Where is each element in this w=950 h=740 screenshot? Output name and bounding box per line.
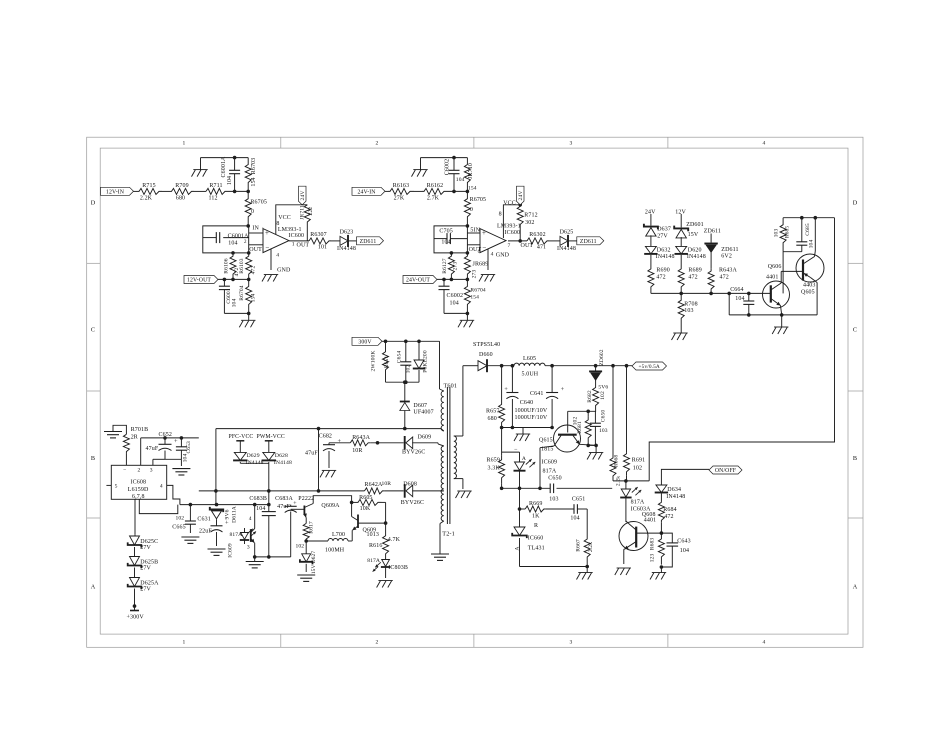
svg-text:R6705: R6705 (470, 197, 487, 203)
svg-text:472: 472 (250, 266, 256, 275)
svg-text:IN: IN (252, 225, 259, 231)
svg-text:C640: C640 (520, 400, 533, 406)
svg-text:PWM-VCC: PWM-VCC (257, 434, 285, 440)
svg-text:C683B: C683B (249, 496, 267, 502)
svg-text:103: 103 (684, 308, 693, 314)
svg-text:302: 302 (525, 220, 534, 226)
svg-text:ON/OFF: ON/OFF (715, 468, 736, 474)
svg-text:JR711: JR711 (299, 205, 305, 220)
svg-text:104: 104 (441, 240, 450, 246)
svg-text:12V-OUT: 12V-OUT (187, 278, 211, 284)
svg-text:L6159D: L6159D (128, 487, 149, 493)
svg-text:R711: R711 (209, 183, 222, 189)
svg-text:D628: D628 (275, 453, 288, 459)
svg-text:C705: C705 (439, 229, 452, 235)
svg-text:6,7,8: 6,7,8 (132, 494, 145, 500)
svg-text:R: R (534, 523, 538, 529)
svg-text:R657: R657 (486, 408, 499, 414)
svg-text:R708: R708 (684, 301, 697, 307)
svg-text:IC609: IC609 (542, 460, 558, 466)
svg-text:2: 2 (376, 141, 379, 147)
svg-text:2W100K: 2W100K (371, 350, 377, 371)
svg-text:104: 104 (680, 548, 689, 554)
svg-text:4: 4 (249, 516, 252, 522)
svg-text:112: 112 (208, 196, 217, 202)
svg-text:D629: D629 (247, 453, 260, 459)
svg-text:2R: 2R (131, 435, 138, 441)
svg-text:+5v/0.5A: +5v/0.5A (639, 364, 660, 370)
svg-text:A: A (91, 584, 96, 591)
svg-text:R643A: R643A (719, 268, 737, 274)
svg-text:D623: D623 (340, 229, 354, 235)
svg-text:C685: C685 (805, 223, 811, 236)
svg-text:27V: 27V (140, 566, 151, 572)
svg-text:R616: R616 (369, 543, 382, 549)
svg-text:C650: C650 (548, 475, 561, 481)
svg-text:5IN: 5IN (470, 227, 480, 233)
svg-text:8: 8 (499, 211, 502, 217)
svg-text:472: 472 (664, 514, 673, 520)
svg-text:27V: 27V (140, 587, 151, 593)
svg-text:+: + (293, 501, 297, 507)
svg-text:10R: 10R (382, 481, 392, 487)
svg-text:104: 104 (227, 176, 233, 185)
svg-text:R715: R715 (142, 183, 155, 189)
svg-text:IC660: IC660 (528, 535, 544, 541)
svg-text:R659: R659 (487, 458, 500, 464)
svg-text:R684: R684 (663, 507, 676, 513)
svg-text:102: 102 (406, 365, 412, 374)
svg-text:3.3K: 3.3K (488, 466, 501, 472)
svg-text:D608: D608 (403, 481, 417, 487)
svg-text:IN4148: IN4148 (656, 254, 675, 260)
svg-text:4: 4 (491, 252, 494, 258)
svg-text:C: C (853, 327, 857, 334)
svg-text:154: 154 (468, 186, 477, 192)
svg-text:15V: 15V (688, 232, 699, 238)
svg-text:24V-OUT: 24V-OUT (406, 278, 430, 284)
svg-text:R617: R617 (308, 521, 314, 534)
svg-text:C683A: C683A (275, 496, 293, 502)
svg-text:R605: R605 (359, 495, 372, 501)
svg-text:5V6: 5V6 (598, 385, 608, 391)
svg-text:102: 102 (633, 466, 642, 472)
svg-text:OUT: OUT (297, 242, 310, 248)
svg-text:5: 5 (115, 483, 118, 489)
svg-text:R709: R709 (175, 183, 188, 189)
svg-text:R683: R683 (649, 538, 655, 551)
svg-text:+: + (561, 386, 565, 393)
svg-text:+: + (225, 519, 229, 526)
svg-text:C682: C682 (319, 433, 332, 439)
svg-text:104: 104 (231, 299, 237, 308)
svg-text:101: 101 (318, 245, 327, 251)
svg-text:D632: D632 (657, 247, 671, 253)
svg-text:10R: 10R (352, 448, 362, 454)
svg-text:R701B: R701B (131, 427, 149, 433)
svg-text:A: A (522, 456, 526, 462)
svg-text:471: 471 (537, 245, 546, 251)
svg-text:R6302: R6302 (529, 232, 546, 238)
svg-text:+: + (504, 386, 508, 393)
svg-text:472: 472 (656, 274, 665, 280)
svg-text:L605: L605 (523, 356, 536, 362)
svg-text:ZD602: ZD602 (599, 349, 605, 365)
svg-text:103: 103 (549, 497, 558, 503)
svg-text:27V: 27V (140, 545, 151, 551)
svg-text:104: 104 (183, 454, 189, 463)
svg-text:4: 4 (763, 640, 766, 646)
svg-text:0: 0 (470, 207, 473, 213)
svg-text:R642A: R642A (365, 482, 383, 488)
svg-text:27V: 27V (657, 233, 668, 239)
svg-text:4.7K: 4.7K (388, 537, 401, 543)
svg-text:D611A: D611A (231, 506, 237, 523)
svg-text:680: 680 (176, 196, 185, 202)
svg-text:IN4148: IN4148 (337, 246, 356, 252)
svg-text:C641: C641 (530, 391, 543, 397)
svg-text:IC600: IC600 (289, 233, 305, 239)
svg-text:4: 4 (276, 253, 279, 259)
svg-text:5.0UH: 5.0UH (522, 371, 539, 377)
svg-text:3: 3 (150, 468, 153, 474)
svg-text:VCC: VCC (278, 215, 291, 221)
svg-text:A: A (514, 546, 520, 550)
svg-text:3: 3 (570, 640, 573, 646)
svg-text:C: C (91, 327, 95, 334)
svg-text:2: 2 (244, 240, 247, 245)
svg-text:7: 7 (508, 243, 511, 249)
svg-text:6V2: 6V2 (721, 253, 732, 259)
svg-text:3: 3 (247, 544, 250, 550)
svg-text:R6704: R6704 (239, 285, 245, 301)
svg-text:+300V: +300V (127, 614, 145, 620)
svg-text:GND: GND (277, 267, 291, 273)
svg-text:104: 104 (570, 516, 579, 522)
svg-text:817A: 817A (543, 469, 557, 475)
svg-text:R643A: R643A (352, 435, 370, 441)
svg-text:IN4148: IN4148 (246, 460, 264, 466)
svg-text:IC609: IC609 (228, 543, 234, 558)
svg-text:1: 1 (292, 242, 295, 248)
svg-text:+: + (482, 229, 486, 237)
svg-text:D620: D620 (688, 247, 702, 253)
svg-text:PFC-VCC: PFC-VCC (229, 434, 254, 440)
svg-text:IN4148: IN4148 (666, 494, 685, 500)
svg-text:1K: 1K (532, 514, 540, 520)
svg-text:2.2k: 2.2k (588, 542, 594, 552)
svg-text:R667: R667 (576, 539, 582, 552)
svg-text:1815: 1815 (541, 446, 553, 452)
svg-text:472: 472 (720, 274, 729, 280)
svg-text:D607: D607 (413, 403, 427, 409)
svg-text:R6163: R6163 (393, 183, 410, 189)
svg-text:C643: C643 (677, 539, 690, 545)
svg-text:104: 104 (450, 300, 459, 306)
svg-text:Q606: Q606 (768, 264, 782, 270)
svg-text:IN4148: IN4148 (274, 460, 292, 466)
svg-text:47uF: 47uF (146, 446, 159, 452)
svg-text:−: − (482, 244, 486, 252)
svg-text:27K: 27K (394, 196, 405, 202)
svg-text:ZD611: ZD611 (704, 228, 721, 234)
svg-text:102: 102 (600, 391, 606, 400)
svg-text:R6705: R6705 (250, 199, 267, 205)
svg-text:9V6: 9V6 (225, 509, 231, 519)
svg-text:1000UF/10V: 1000UF/10V (515, 415, 548, 421)
svg-text:C654: C654 (396, 351, 402, 364)
svg-text:Q605: Q605 (801, 289, 815, 295)
svg-text:IN4148: IN4148 (687, 254, 706, 260)
svg-text:IN4148: IN4148 (557, 246, 576, 252)
svg-text:D637: D637 (657, 226, 671, 232)
svg-text:OUT: OUT (469, 247, 482, 253)
svg-text:R689: R689 (688, 268, 701, 274)
svg-text:IC600: IC600 (505, 230, 521, 236)
svg-text:D: D (853, 200, 858, 207)
svg-text:C665: C665 (172, 524, 185, 530)
svg-text:222: 222 (308, 207, 314, 216)
svg-text:R6703: R6703 (251, 158, 257, 175)
svg-text:273: 273 (453, 262, 459, 271)
svg-text:4: 4 (763, 141, 766, 147)
svg-text:154: 154 (250, 294, 256, 303)
svg-text:C6001A: C6001A (221, 156, 227, 178)
svg-text:817A: 817A (631, 500, 645, 506)
svg-text:+: + (174, 438, 178, 445)
svg-text:R685: R685 (784, 226, 790, 239)
svg-text:R690: R690 (656, 268, 669, 274)
svg-text:D625: D625 (560, 229, 574, 235)
svg-text:472: 472 (688, 274, 697, 280)
svg-text:A: A (853, 584, 858, 591)
svg-text:BYV26C: BYV26C (402, 449, 425, 455)
svg-text:TL431: TL431 (528, 545, 545, 551)
svg-text:273: 273 (471, 270, 477, 279)
svg-text:JR689: JR689 (473, 262, 489, 268)
svg-text:2.2K: 2.2K (140, 196, 153, 202)
svg-text:0: 0 (251, 209, 254, 215)
svg-text:123: 123 (649, 554, 655, 563)
svg-text:103: 103 (599, 428, 608, 434)
svg-text:102: 102 (176, 515, 185, 521)
svg-text:R681: R681 (577, 421, 583, 434)
svg-text:104: 104 (809, 240, 815, 249)
svg-text:C650: C650 (600, 410, 606, 423)
svg-text:L700: L700 (332, 532, 345, 538)
svg-text:R668: R668 (613, 455, 619, 468)
svg-text:−: − (265, 244, 269, 252)
svg-text:R6106: R6106 (224, 258, 230, 274)
svg-text:1: 1 (183, 640, 186, 646)
svg-text:24V: 24V (300, 191, 306, 201)
svg-text:B: B (853, 455, 857, 462)
svg-text:C653: C653 (186, 441, 192, 454)
svg-text:15V D627: 15V D627 (311, 551, 317, 574)
svg-text:ZD611: ZD611 (721, 247, 738, 253)
svg-text:103: 103 (774, 229, 780, 238)
svg-text:GND: GND (496, 252, 510, 258)
svg-text:D609: D609 (418, 434, 432, 440)
svg-text:24V: 24V (518, 191, 524, 201)
svg-text:2: 2 (138, 467, 141, 473)
svg-text:24V-IN: 24V-IN (357, 189, 376, 195)
svg-text:680: 680 (488, 416, 497, 422)
svg-text:Q615: Q615 (539, 438, 553, 444)
svg-text:UF4007: UF4007 (413, 409, 433, 415)
svg-text:12V-IN: 12V-IN (106, 189, 125, 195)
svg-text:2.7K: 2.7K (427, 196, 440, 202)
svg-text:ZD611: ZD611 (580, 239, 597, 245)
svg-text:C652: C652 (159, 432, 172, 438)
svg-text:104: 104 (256, 506, 265, 512)
svg-text:+: + (338, 438, 342, 445)
svg-text:154: 154 (470, 294, 479, 300)
svg-text:817A: 817A (367, 558, 380, 564)
svg-text:P2222: P2222 (298, 496, 314, 502)
svg-text:R691: R691 (632, 457, 645, 463)
svg-text:+: + (265, 229, 269, 237)
svg-text:102: 102 (296, 544, 305, 550)
svg-text:R651: R651 (384, 356, 390, 369)
svg-text:−: − (123, 467, 126, 473)
svg-text:1013: 1013 (367, 532, 379, 538)
svg-text:OUT: OUT (249, 247, 262, 253)
svg-text:10K: 10K (360, 506, 371, 512)
svg-text:300V: 300V (358, 339, 372, 345)
svg-text:VCC: VCC (503, 200, 516, 206)
svg-text:R6103: R6103 (239, 258, 245, 274)
svg-text:C651: C651 (572, 497, 585, 503)
svg-text:104: 104 (456, 177, 465, 183)
svg-text:R712: R712 (524, 213, 537, 219)
svg-text:ZD611: ZD611 (360, 239, 377, 245)
svg-text:R6127: R6127 (442, 258, 448, 274)
svg-text:R6307: R6307 (310, 232, 327, 238)
svg-text:47uF: 47uF (305, 450, 318, 456)
svg-text:P6KE200: P6KE200 (423, 350, 429, 373)
svg-text:4403: 4403 (803, 283, 815, 289)
svg-text:C6002: C6002 (444, 159, 450, 176)
svg-text:IC803B: IC803B (388, 565, 408, 571)
svg-text:D: D (91, 200, 96, 207)
svg-text:4401: 4401 (766, 275, 778, 281)
svg-text:154: 154 (251, 177, 257, 186)
svg-text:B: B (91, 455, 95, 462)
svg-text:BYV26C: BYV26C (401, 500, 424, 506)
svg-text:47uF: 47uF (277, 504, 290, 510)
svg-text:22uF: 22uF (199, 528, 212, 534)
svg-text:LM393-1: LM393-1 (497, 223, 521, 229)
svg-text:C6001A: C6001A (228, 234, 250, 240)
svg-text:JR710: JR710 (468, 163, 474, 179)
svg-text:D660: D660 (479, 352, 493, 358)
svg-text:−: − (514, 447, 518, 453)
svg-text:D634: D634 (667, 487, 681, 493)
svg-text:2: 2 (376, 640, 379, 646)
svg-text:1: 1 (183, 141, 186, 147)
svg-text:4401: 4401 (644, 518, 656, 524)
svg-text:IC608: IC608 (131, 480, 147, 486)
svg-text:100MH: 100MH (325, 547, 345, 553)
svg-text:R6704: R6704 (470, 288, 486, 294)
svg-text:1000UF/10V: 1000UF/10V (515, 408, 548, 414)
svg-text:R6162: R6162 (427, 183, 444, 189)
svg-text:Q609A: Q609A (321, 503, 340, 509)
svg-text:C6002: C6002 (447, 293, 464, 299)
svg-text:R682: R682 (587, 390, 593, 403)
svg-text:104: 104 (228, 241, 237, 247)
svg-text:C631: C631 (197, 516, 210, 522)
svg-text:104: 104 (735, 296, 744, 302)
svg-text:3: 3 (570, 141, 573, 147)
svg-text:ZD601: ZD601 (686, 222, 704, 228)
svg-text:T2-1: T2-1 (442, 530, 455, 537)
svg-text:C664: C664 (730, 287, 743, 293)
svg-text:STPS5L40: STPS5L40 (473, 342, 500, 348)
svg-text:4: 4 (160, 483, 163, 489)
svg-text:R669: R669 (529, 501, 542, 507)
